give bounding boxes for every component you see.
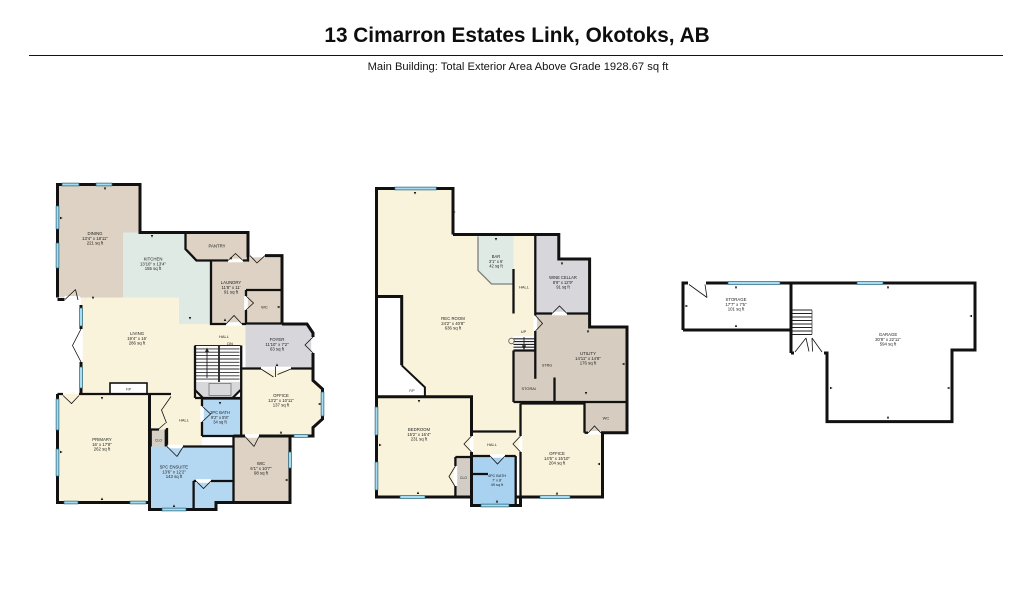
svg-text:HALL: HALL	[219, 334, 230, 339]
svg-text:CLO: CLO	[155, 439, 162, 443]
svg-text:CLO: CLO	[460, 476, 467, 480]
svg-text:231 sq ft: 231 sq ft	[411, 437, 428, 442]
svg-text:7' x 8': 7' x 8'	[492, 479, 502, 483]
svg-text:176 sq ft: 176 sq ft	[580, 361, 597, 366]
svg-text:WC: WC	[603, 416, 610, 421]
svg-text:F/P: F/P	[126, 388, 132, 392]
svg-text:91 sq ft: 91 sq ft	[556, 285, 570, 290]
svg-text:636 sq ft: 636 sq ft	[445, 326, 462, 331]
svg-text:63 sq ft: 63 sq ft	[270, 347, 285, 352]
svg-text:594 sq ft: 594 sq ft	[880, 342, 897, 347]
svg-text:WC: WC	[261, 305, 268, 310]
svg-text:UP: UP	[521, 329, 527, 334]
svg-text:F/P: F/P	[409, 389, 415, 393]
svg-text:91 sq ft: 91 sq ft	[224, 290, 239, 295]
svg-text:262 sq ft: 262 sq ft	[94, 447, 111, 452]
svg-text:286 sq ft: 286 sq ft	[129, 341, 146, 346]
svg-text:137 sq ft: 137 sq ft	[273, 403, 290, 408]
svg-text:204 sq ft: 204 sq ft	[549, 461, 566, 466]
svg-text:HALL: HALL	[487, 442, 498, 447]
svg-text:34 sq ft: 34 sq ft	[213, 420, 227, 425]
svg-text:HALL: HALL	[179, 418, 190, 423]
svg-text:PANTRY: PANTRY	[208, 244, 225, 249]
svg-text:HALL: HALL	[519, 285, 530, 290]
svg-text:STRG: STRG	[542, 364, 552, 368]
svg-text:155 sq ft: 155 sq ft	[145, 266, 162, 271]
svg-text:42 sq ft: 42 sq ft	[489, 264, 503, 269]
svg-text:49 sq ft: 49 sq ft	[491, 483, 504, 487]
svg-text:143 sq ft: 143 sq ft	[166, 474, 183, 479]
svg-text:4PC BATH: 4PC BATH	[488, 474, 507, 478]
svg-text:98 sq ft: 98 sq ft	[254, 471, 269, 476]
svg-text:101 sq ft: 101 sq ft	[728, 307, 745, 312]
svg-text:221 sq ft: 221 sq ft	[87, 241, 104, 246]
